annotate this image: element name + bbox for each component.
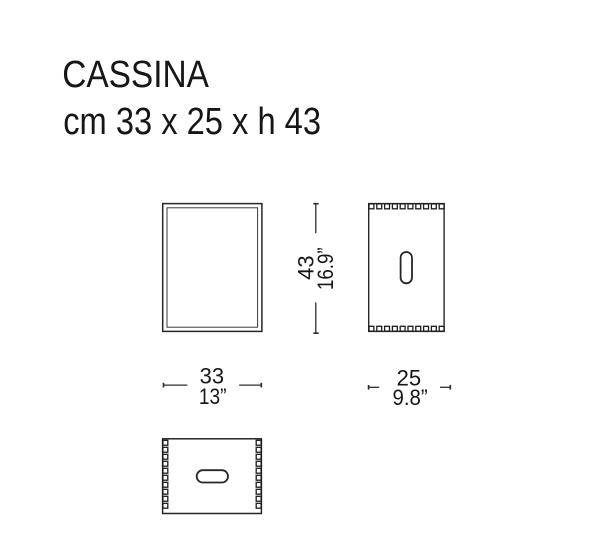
svg-text:9.8”: 9.8” [392, 386, 427, 411]
svg-text:13”: 13” [199, 385, 227, 410]
svg-text:cm 33 x 25 x h 43: cm 33 x 25 x h 43 [63, 100, 321, 143]
svg-text:16.9”: 16.9” [315, 247, 339, 290]
svg-text:CASSINA: CASSINA [62, 53, 209, 95]
